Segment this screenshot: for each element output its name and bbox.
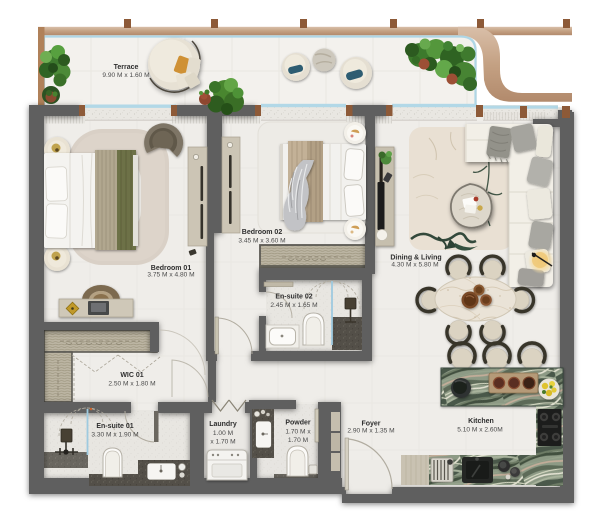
svg-text:9.90 M x 1.60 M: 9.90 M x 1.60 M bbox=[102, 72, 149, 79]
svg-text:x 1.70 M: x 1.70 M bbox=[210, 439, 235, 446]
svg-text:Dining & Living: Dining & Living bbox=[390, 255, 441, 262]
svg-text:3.75 M x 4.80 M: 3.75 M x 4.80 M bbox=[147, 272, 194, 279]
svg-text:2.45 M x 1.65 M: 2.45 M x 1.65 M bbox=[270, 302, 317, 309]
svg-text:3.45 M x 3.60 M: 3.45 M x 3.60 M bbox=[238, 238, 285, 245]
svg-text:Powder: Powder bbox=[285, 420, 311, 427]
svg-text:1.70 M x: 1.70 M x bbox=[285, 429, 311, 436]
svg-text:2.50 M x 1.80 M: 2.50 M x 1.80 M bbox=[108, 381, 155, 388]
svg-text:En-suite 02: En-suite 02 bbox=[275, 294, 312, 301]
svg-text:2.90 M x 1.35 M: 2.90 M x 1.35 M bbox=[347, 428, 394, 435]
svg-text:3.30 M x 1.90 M: 3.30 M x 1.90 M bbox=[91, 432, 138, 439]
svg-text:4.30 M x 5.80 M: 4.30 M x 5.80 M bbox=[391, 262, 438, 269]
svg-text:Bedroom 02: Bedroom 02 bbox=[242, 229, 283, 236]
svg-text:Laundry: Laundry bbox=[209, 421, 237, 428]
svg-text:5.10 M x 2.60M: 5.10 M x 2.60M bbox=[457, 427, 502, 434]
svg-text:En-suite 01: En-suite 01 bbox=[96, 423, 133, 430]
svg-text:1.00 M: 1.00 M bbox=[213, 430, 233, 437]
svg-text:1.70 M: 1.70 M bbox=[288, 437, 308, 444]
svg-text:WIC 01: WIC 01 bbox=[120, 372, 143, 379]
svg-text:Foyer: Foyer bbox=[361, 421, 380, 428]
svg-text:Terrace: Terrace bbox=[114, 64, 139, 71]
svg-text:Kitchen: Kitchen bbox=[468, 418, 494, 425]
